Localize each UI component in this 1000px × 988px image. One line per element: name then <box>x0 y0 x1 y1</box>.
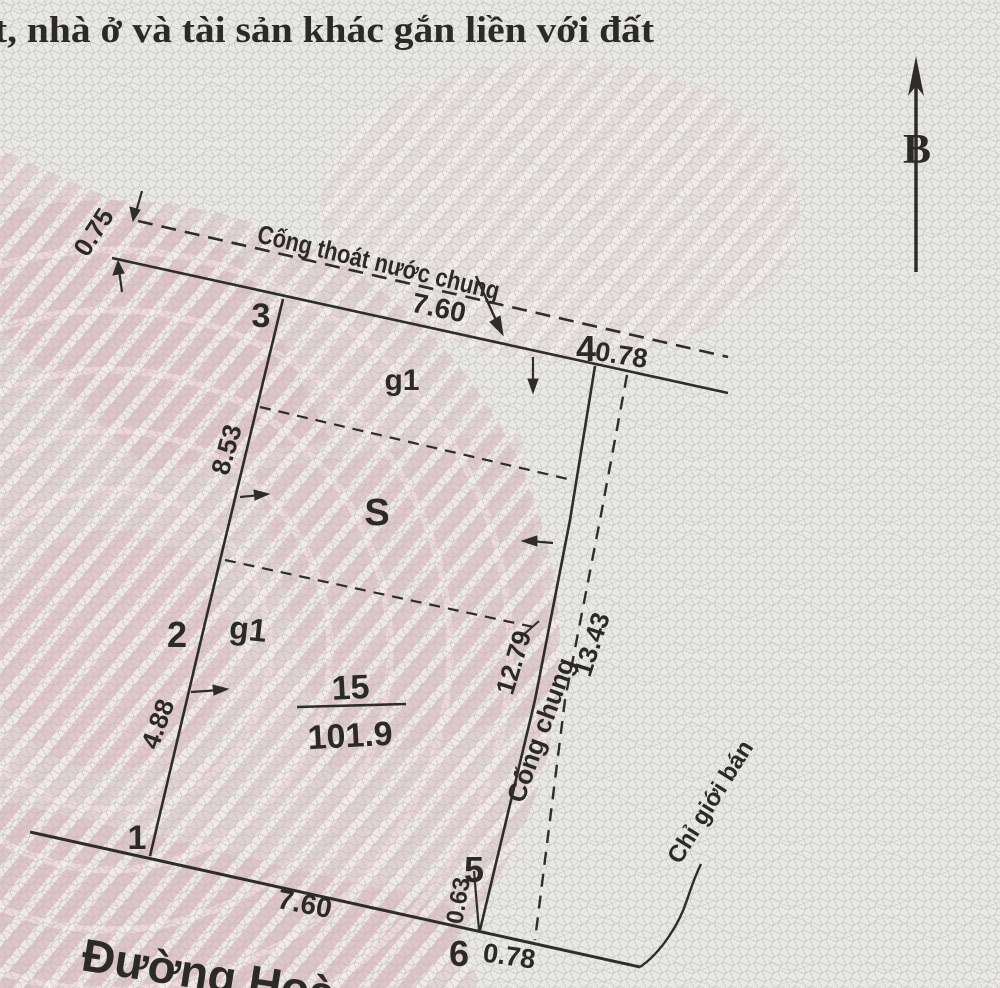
plot-area: 101.9 <box>307 715 394 757</box>
zone-label-top: g1 <box>384 364 419 397</box>
zone-label-left: g1 <box>228 609 269 649</box>
certificate-scan: t, nhà ở và tài sản khác gắn liền với đấ… <box>0 0 1000 988</box>
vertex-label-2: 2 <box>167 614 187 655</box>
vertex-label-1: 1 <box>128 819 147 857</box>
plot-number: 15 <box>331 668 371 708</box>
zone-label-mid: S <box>364 492 389 534</box>
vertex-label-6: 6 <box>449 933 469 974</box>
vertex-label-3: 3 <box>252 297 271 335</box>
page-title: t, nhà ở và tài sản khác gắn liền với đấ… <box>0 10 655 51</box>
wave-pattern <box>0 0 1000 988</box>
guilloche-background <box>0 0 1000 988</box>
cadastral-sketch: t, nhà ở và tài sản khác gắn liền với đấ… <box>0 0 1000 988</box>
north-label: B <box>903 127 931 173</box>
